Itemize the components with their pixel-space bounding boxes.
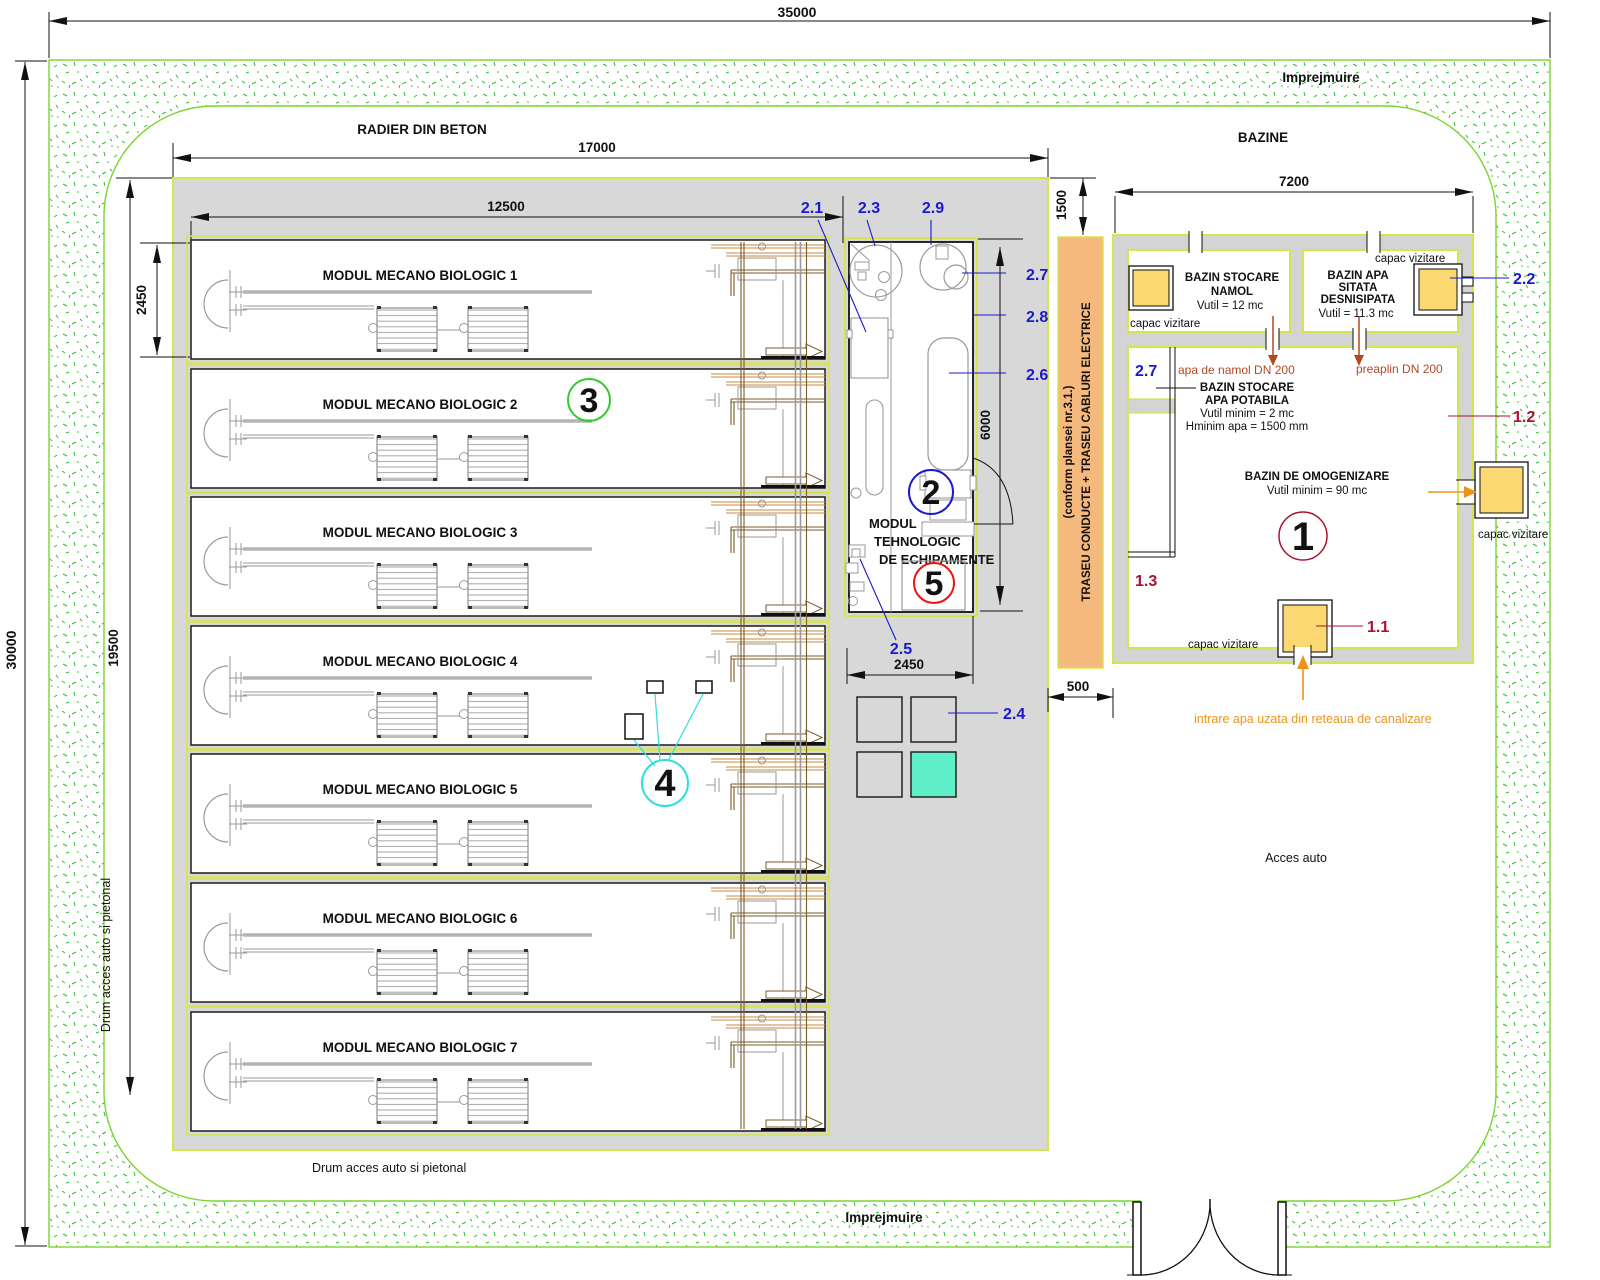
potabila-title1: BAZIN STOCARE (1200, 382, 1295, 394)
site-plan-canvas: 35000 30000 Imprejmuire Imprejmuire RADI… (0, 0, 1600, 1280)
dim-12500-text: 12500 (487, 199, 525, 214)
tech-label-line1: MODUL (869, 516, 917, 531)
callout-2-4: 2.4 (1003, 706, 1025, 723)
callout-2-6: 2.6 (1026, 367, 1048, 384)
bazine-title: BAZINE (1238, 130, 1288, 145)
desnisipata-capac-label: capac vizitare (1375, 253, 1445, 265)
module-2-title: MODUL MECANO BIOLOGIC 2 (323, 397, 518, 412)
drum-bottom-label: Drum acces auto si pietonal (312, 1161, 466, 1175)
radier-label: RADIER DIN BETON (357, 122, 487, 137)
capac-namol (1129, 266, 1173, 310)
omogenizare-volume: Vutil minim = 90 mc (1267, 485, 1367, 497)
callout-2-7-bazine: 2.7 (1135, 363, 1157, 380)
desnisipata-title2: SITATA (1339, 282, 1378, 294)
fence-label-top: Imprejmuire (1282, 70, 1360, 85)
namol-capac-label: capac vizitare (1130, 318, 1200, 330)
module-5-title: MODUL MECANO BIOLOGIC 5 (323, 782, 518, 797)
dim-2450-module-text: 2450 (134, 285, 149, 315)
dim-500-text: 500 (1067, 679, 1090, 694)
dim-2450-tech-text: 2450 (894, 657, 924, 672)
dim-17000-text: 17000 (578, 140, 616, 155)
module-4-title: MODUL MECANO BIOLOGIC 4 (323, 654, 518, 669)
callout-1-3: 1.3 (1135, 573, 1157, 590)
dim-1500-text: 1500 (1054, 190, 1069, 220)
dimension-35000: 35000 (49, 4, 1550, 58)
bazine-complex: BAZIN STOCARE NAMOL Vutil = 12 mc capac … (1113, 231, 1548, 726)
callout-5-text: 5 (925, 565, 944, 603)
omogenizare-title: BAZIN DE OMOGENIZARE (1245, 471, 1390, 483)
dimension-7200: 7200 (1115, 174, 1473, 233)
callout-1-text: 1 (1292, 515, 1314, 559)
callout-4-box-c (625, 714, 643, 739)
namol-volume: Vutil = 12 mc (1197, 300, 1264, 312)
dim-6000-text: 6000 (978, 410, 993, 440)
site-plan-drawing: 35000 30000 Imprejmuire Imprejmuire RADI… (0, 0, 1600, 1280)
gate-post-left (1133, 1202, 1141, 1275)
pipe-namol-label: apa de namol DN 200 (1178, 363, 1295, 377)
callout-2-5: 2.5 (890, 641, 912, 658)
dim-30000-text: 30000 (3, 630, 19, 669)
potabila-volume2: Hminim apa = 1500 mm (1186, 421, 1308, 433)
acces-auto-label: Acces auto (1265, 851, 1327, 865)
module-7-title: MODUL MECANO BIOLOGIC 7 (323, 1040, 518, 1055)
dimension-30000: 30000 (3, 61, 47, 1246)
dimension-1500: 1500 (1050, 178, 1096, 235)
callout-2-3: 2.3 (858, 200, 880, 217)
dimension-17000: 17000 (173, 140, 1048, 177)
module-3-title: MODUL MECANO BIOLOGIC 3 (323, 525, 518, 540)
callout-2-9: 2.9 (922, 200, 944, 217)
capac-right-label: capac vizitare (1478, 529, 1548, 541)
intrare-label: intrare apa uzata din reteaua de canaliz… (1194, 712, 1432, 726)
highlighted-pad (911, 752, 956, 797)
dim-7200-text: 7200 (1279, 174, 1309, 189)
namol-title1: BAZIN STOCARE (1185, 272, 1280, 284)
potabila-volume1: Vutil minim = 2 mc (1200, 408, 1294, 420)
namol-title2: NAMOL (1211, 286, 1253, 298)
dimension-500: 500 (1048, 679, 1113, 718)
dim-35000-text: 35000 (778, 4, 817, 20)
pipe-cable-strip: TRASEU CONDUCTE + TRASEU CABLURI ELECTRI… (1058, 237, 1103, 668)
drum-left-label: Drum acces auto si pietonal (99, 878, 113, 1032)
desnisipata-volume: Vutil = 11.3 mc (1318, 308, 1393, 320)
desnisipata-title3: DESNISIPATA (1321, 294, 1396, 306)
potabila-title2: APA POTABILA (1205, 395, 1289, 407)
gate (1127, 1199, 1292, 1275)
fence-label-bottom: Imprejmuire (845, 1210, 923, 1225)
modules-group: MODUL MECANO BIOLOGIC 1 MODUL MECANO BIO… (187, 236, 829, 1135)
callout-4-box-a (647, 681, 663, 693)
tech-label-line2: TEHNOLOGIC (874, 534, 961, 549)
callout-2-8: 2.8 (1026, 309, 1048, 326)
desnisipata-title1: BAZIN APA (1327, 270, 1388, 282)
callout-1-2: 1.2 (1513, 409, 1535, 426)
traseu-line2: (conform plansei nr.3.1.) (1063, 385, 1075, 518)
module-1-title: MODUL MECANO BIOLOGIC 1 (323, 268, 518, 283)
gate-post-right (1278, 1202, 1286, 1275)
traseu-line1: TRASEU CONDUCTE + TRASEU CABLURI ELECTRI… (1081, 302, 1093, 602)
callout-2-7: 2.7 (1026, 267, 1048, 284)
pipe-preaplin-label: preaplin DN 200 (1356, 362, 1443, 376)
callout-2-text: 2 (922, 474, 941, 512)
callout-1-1: 1.1 (1367, 619, 1389, 636)
callout-4-box-b (696, 681, 712, 693)
dim-19500-text: 19500 (106, 629, 121, 667)
callout-4-text: 4 (654, 763, 675, 805)
callout-2-2: 2.2 (1513, 271, 1535, 288)
callout-2-1: 2.1 (801, 200, 823, 217)
capac-right (1475, 462, 1528, 518)
callout-3-text: 3 (580, 382, 599, 420)
module-6-title: MODUL MECANO BIOLOGIC 6 (323, 911, 518, 926)
capac-bottom-label: capac vizitare (1188, 639, 1258, 651)
